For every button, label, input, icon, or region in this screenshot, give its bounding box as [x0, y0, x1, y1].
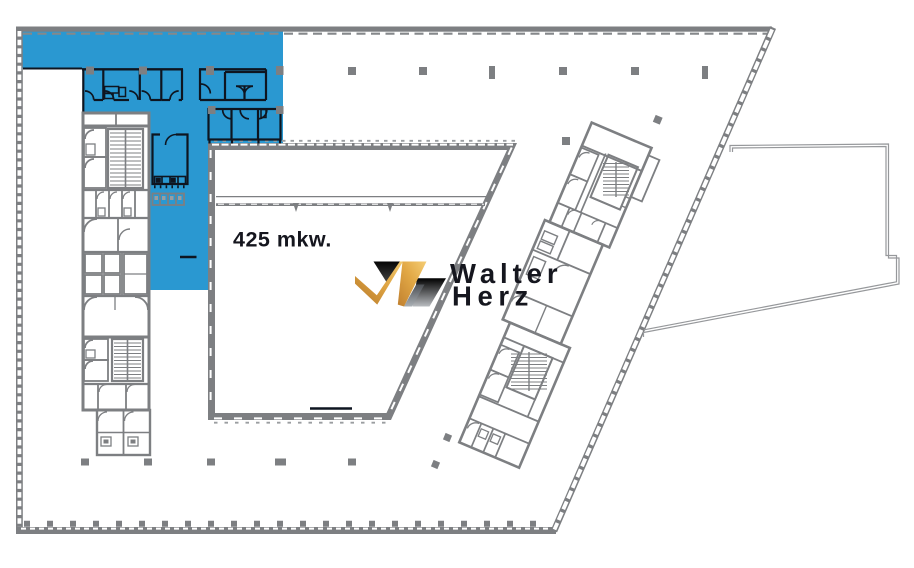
svg-text:425 mkw.: 425 mkw.: [233, 228, 332, 252]
svg-text:Herz: Herz: [452, 281, 534, 312]
